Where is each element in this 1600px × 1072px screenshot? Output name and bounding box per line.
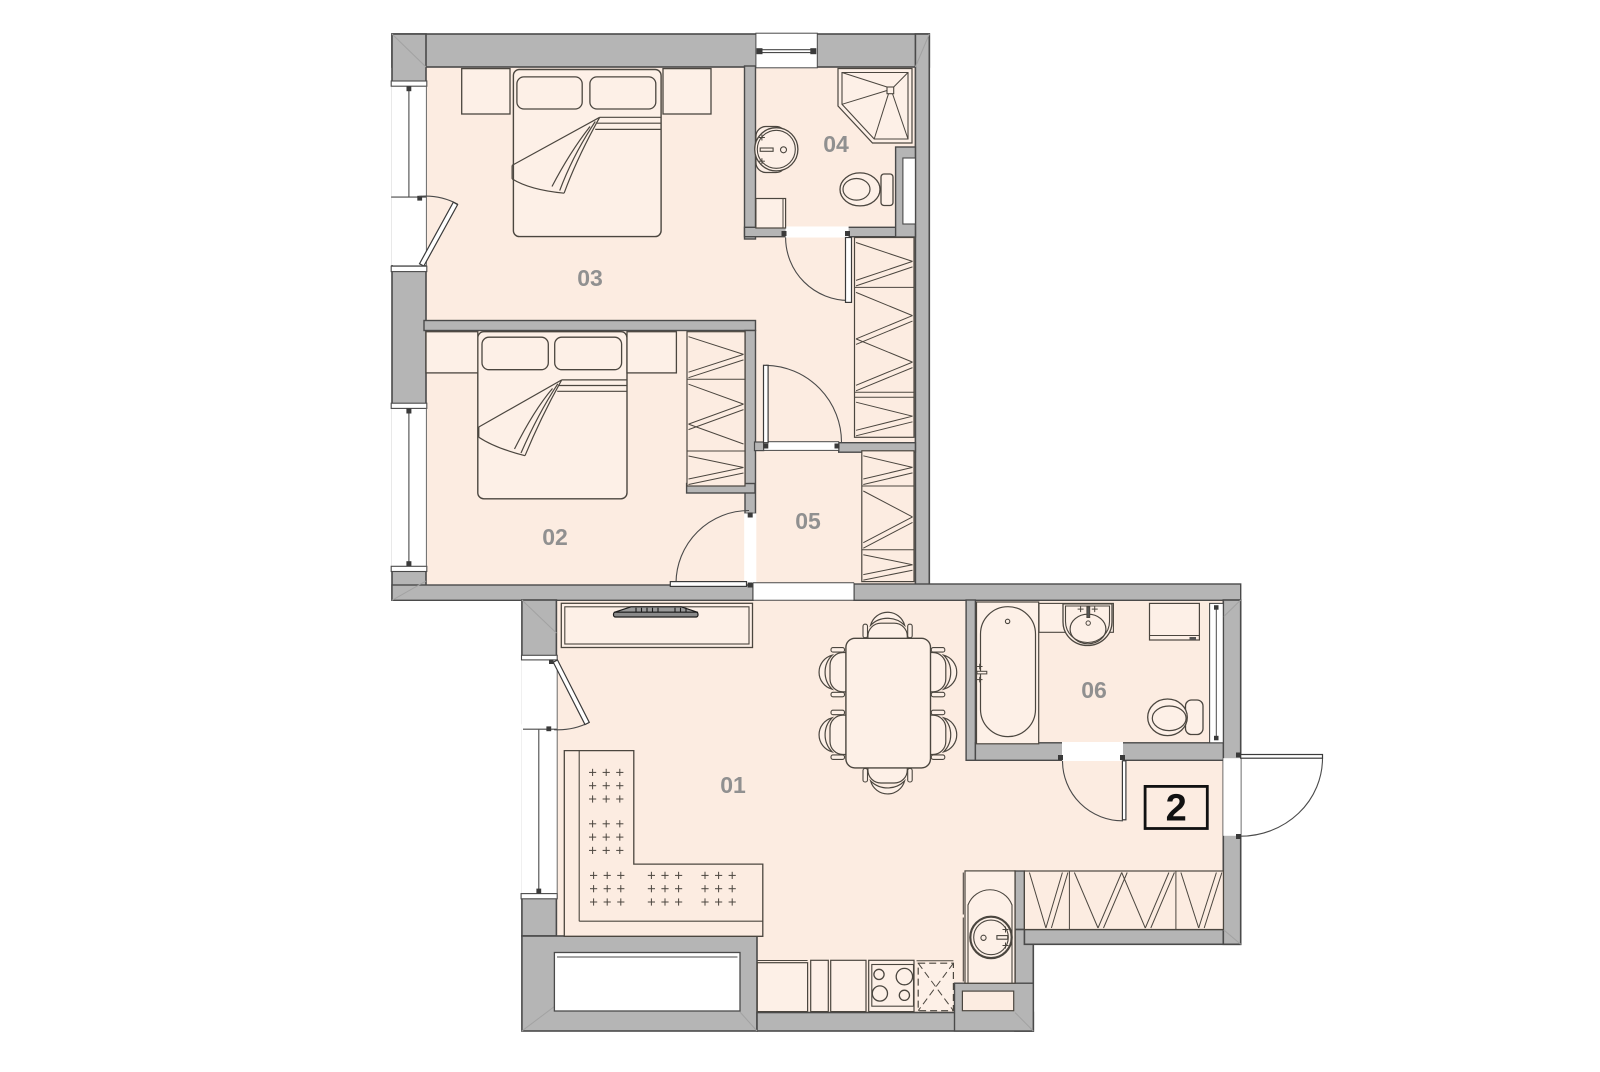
svg-text:03: 03 bbox=[577, 265, 603, 291]
svg-text:01: 01 bbox=[720, 772, 746, 798]
svg-text:05: 05 bbox=[795, 508, 821, 534]
svg-text:2: 2 bbox=[1166, 788, 1187, 830]
svg-text:04: 04 bbox=[823, 131, 849, 157]
svg-text:06: 06 bbox=[1081, 677, 1107, 703]
svg-text:02: 02 bbox=[542, 524, 568, 550]
